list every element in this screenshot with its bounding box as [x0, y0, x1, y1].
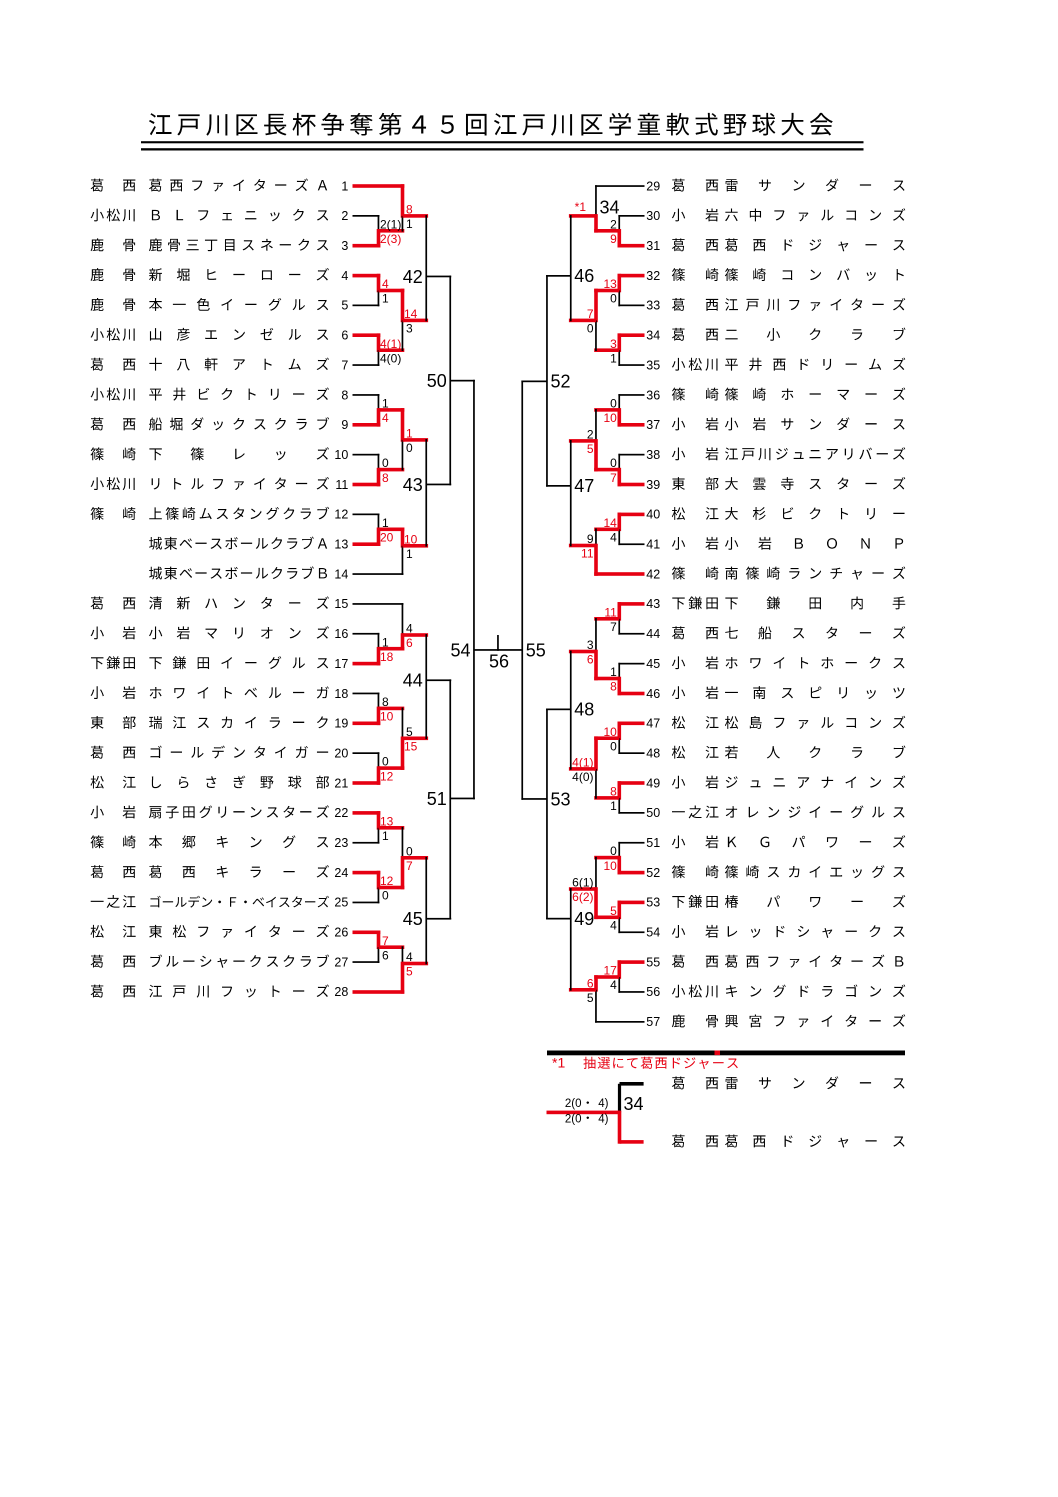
svg-text:1: 1	[382, 292, 389, 306]
svg-text:2(3): 2(3)	[380, 232, 401, 246]
svg-text:4(0): 4(0)	[572, 770, 593, 784]
svg-text:8: 8	[341, 388, 348, 402]
svg-text:4): 4)	[598, 1113, 608, 1125]
svg-text:0: 0	[406, 844, 413, 858]
svg-text:40: 40	[646, 508, 660, 522]
svg-text:0: 0	[587, 322, 594, 336]
svg-text:0: 0	[382, 889, 389, 903]
svg-text:51: 51	[427, 789, 447, 809]
svg-text:11: 11	[335, 478, 348, 492]
svg-text:7: 7	[341, 358, 348, 372]
svg-text:5: 5	[610, 904, 617, 918]
svg-text:0: 0	[610, 397, 617, 411]
svg-text:10: 10	[603, 859, 617, 873]
svg-text:44: 44	[403, 671, 423, 691]
svg-text:6(2): 6(2)	[572, 890, 593, 904]
svg-text:53: 53	[551, 789, 571, 809]
svg-text:11: 11	[604, 605, 617, 619]
svg-text:1: 1	[382, 829, 389, 843]
svg-text:39: 39	[646, 478, 660, 492]
svg-text:38: 38	[646, 448, 660, 462]
svg-text:12: 12	[380, 874, 394, 888]
svg-text:*1: *1	[552, 1055, 565, 1071]
svg-text:21: 21	[334, 776, 348, 790]
svg-text:31: 31	[646, 239, 660, 253]
svg-text:43: 43	[403, 475, 423, 495]
svg-text:47: 47	[574, 476, 594, 496]
svg-text:2: 2	[610, 217, 617, 231]
svg-text:30: 30	[646, 209, 660, 223]
svg-text:6: 6	[587, 653, 594, 667]
svg-text:20: 20	[380, 531, 394, 545]
svg-text:54: 54	[450, 640, 470, 660]
svg-text:52: 52	[551, 372, 571, 392]
svg-text:6: 6	[382, 948, 389, 962]
svg-text:7: 7	[406, 859, 413, 873]
svg-text:0: 0	[382, 755, 389, 769]
svg-text:27: 27	[334, 955, 348, 969]
svg-text:48: 48	[646, 746, 660, 760]
svg-text:0: 0	[406, 441, 413, 455]
svg-text:10: 10	[404, 532, 418, 546]
svg-text:43: 43	[646, 597, 660, 611]
svg-text:1: 1	[610, 799, 617, 813]
svg-text:1: 1	[406, 547, 413, 561]
svg-text:9: 9	[587, 532, 594, 546]
svg-text:19: 19	[334, 717, 348, 731]
svg-text:4(0): 4(0)	[380, 351, 401, 365]
svg-text:10: 10	[334, 448, 348, 462]
svg-text:55: 55	[646, 955, 660, 969]
svg-text:25: 25	[334, 896, 348, 910]
svg-text:6: 6	[587, 976, 594, 990]
svg-text:4: 4	[406, 622, 413, 636]
svg-text:45: 45	[403, 909, 423, 929]
svg-text:34: 34	[646, 329, 660, 343]
svg-text:1: 1	[610, 665, 617, 679]
svg-text:57: 57	[646, 1015, 660, 1029]
svg-text:7: 7	[610, 620, 617, 634]
svg-text:14: 14	[404, 307, 418, 321]
svg-text:23: 23	[334, 836, 348, 850]
svg-text:47: 47	[646, 717, 660, 731]
svg-text:49: 49	[574, 909, 594, 929]
svg-text:4: 4	[406, 950, 413, 964]
svg-text:10: 10	[603, 725, 617, 739]
svg-text:7: 7	[382, 934, 389, 948]
svg-text:26: 26	[334, 926, 348, 940]
svg-text:2(1): 2(1)	[380, 217, 401, 231]
svg-text:7: 7	[587, 307, 594, 321]
svg-text:1: 1	[382, 397, 389, 411]
svg-text:55: 55	[526, 640, 546, 660]
svg-text:0: 0	[610, 739, 617, 753]
svg-text:42: 42	[646, 567, 660, 581]
svg-text:*1: *1	[575, 200, 587, 214]
svg-text:41: 41	[646, 538, 660, 552]
svg-text:15: 15	[334, 597, 348, 611]
svg-text:9: 9	[341, 418, 348, 432]
svg-text:4(1): 4(1)	[572, 756, 593, 770]
svg-text:2(0: 2(0	[565, 1098, 582, 1110]
svg-text:28: 28	[334, 985, 348, 999]
svg-text:0: 0	[610, 844, 617, 858]
svg-text:4: 4	[610, 978, 617, 992]
svg-text:10: 10	[603, 411, 617, 425]
svg-text:54: 54	[646, 926, 660, 940]
svg-text:24: 24	[334, 866, 348, 880]
svg-text:7: 7	[610, 471, 617, 485]
svg-text:4: 4	[341, 269, 348, 283]
svg-text:5: 5	[587, 991, 594, 1005]
svg-text:29: 29	[646, 179, 660, 193]
svg-text:35: 35	[646, 358, 660, 372]
svg-text:4: 4	[610, 531, 617, 545]
svg-text:1: 1	[406, 217, 413, 231]
svg-text:37: 37	[646, 418, 660, 432]
svg-text:15: 15	[404, 740, 418, 754]
svg-text:56: 56	[646, 985, 660, 999]
svg-text:13: 13	[603, 277, 617, 291]
svg-text:14: 14	[603, 516, 617, 530]
svg-text:18: 18	[380, 650, 394, 664]
svg-text:0: 0	[382, 456, 389, 470]
svg-text:46: 46	[574, 266, 594, 286]
svg-text:17: 17	[603, 964, 617, 978]
svg-text:2: 2	[341, 209, 348, 223]
svg-text:1: 1	[382, 516, 389, 530]
svg-text:22: 22	[334, 806, 348, 820]
svg-text:51: 51	[646, 836, 660, 850]
svg-text:53: 53	[646, 896, 660, 910]
svg-text:49: 49	[646, 776, 660, 790]
svg-text:12: 12	[380, 769, 394, 783]
svg-text:3: 3	[587, 638, 594, 652]
svg-text:4: 4	[610, 919, 617, 933]
svg-text:5: 5	[341, 299, 348, 313]
svg-text:1: 1	[610, 351, 617, 365]
svg-text:8: 8	[382, 471, 389, 485]
svg-text:1: 1	[382, 635, 389, 649]
svg-text:34: 34	[600, 197, 620, 217]
svg-text:33: 33	[646, 299, 660, 313]
svg-text:11: 11	[581, 547, 594, 561]
svg-text:6(1): 6(1)	[572, 876, 593, 890]
svg-text:1: 1	[341, 179, 348, 193]
svg-text:46: 46	[646, 687, 660, 701]
svg-text:14: 14	[334, 567, 348, 581]
svg-text:8: 8	[610, 680, 617, 694]
svg-text:48: 48	[574, 700, 594, 720]
svg-text:52: 52	[646, 866, 660, 880]
svg-text:3: 3	[406, 322, 413, 336]
svg-text:2(0: 2(0	[565, 1113, 582, 1125]
svg-text:6: 6	[341, 329, 348, 343]
svg-text:50: 50	[646, 806, 660, 820]
svg-text:9: 9	[610, 232, 617, 246]
svg-text:4(1): 4(1)	[380, 337, 401, 351]
svg-text:56: 56	[489, 651, 509, 671]
svg-text:4: 4	[382, 411, 389, 425]
svg-text:8: 8	[382, 695, 389, 709]
svg-text:44: 44	[646, 627, 660, 641]
svg-text:3: 3	[610, 337, 617, 351]
svg-text:8: 8	[406, 203, 413, 217]
svg-text:18: 18	[334, 687, 348, 701]
svg-text:5: 5	[406, 725, 413, 739]
svg-text:1: 1	[406, 427, 413, 441]
svg-text:13: 13	[380, 814, 394, 828]
svg-text:34: 34	[624, 1094, 644, 1114]
svg-text:8: 8	[610, 785, 617, 799]
svg-text:4): 4)	[598, 1098, 608, 1110]
svg-text:5: 5	[406, 965, 413, 979]
svg-text:42: 42	[403, 267, 423, 287]
svg-text:36: 36	[646, 388, 660, 402]
svg-text:13: 13	[334, 538, 348, 552]
svg-text:17: 17	[334, 657, 348, 671]
svg-text:50: 50	[427, 371, 447, 391]
svg-text:16: 16	[334, 627, 348, 641]
svg-text:45: 45	[646, 657, 660, 671]
svg-text:20: 20	[334, 746, 348, 760]
svg-text:4: 4	[382, 277, 389, 291]
svg-text:6: 6	[406, 636, 413, 650]
svg-text:0: 0	[610, 292, 617, 306]
svg-text:0: 0	[610, 456, 617, 470]
svg-text:3: 3	[341, 239, 348, 253]
svg-text:10: 10	[380, 710, 394, 724]
svg-text:2: 2	[587, 428, 594, 442]
svg-text:5: 5	[587, 442, 594, 456]
svg-text:12: 12	[334, 508, 348, 522]
svg-text:32: 32	[646, 269, 660, 283]
